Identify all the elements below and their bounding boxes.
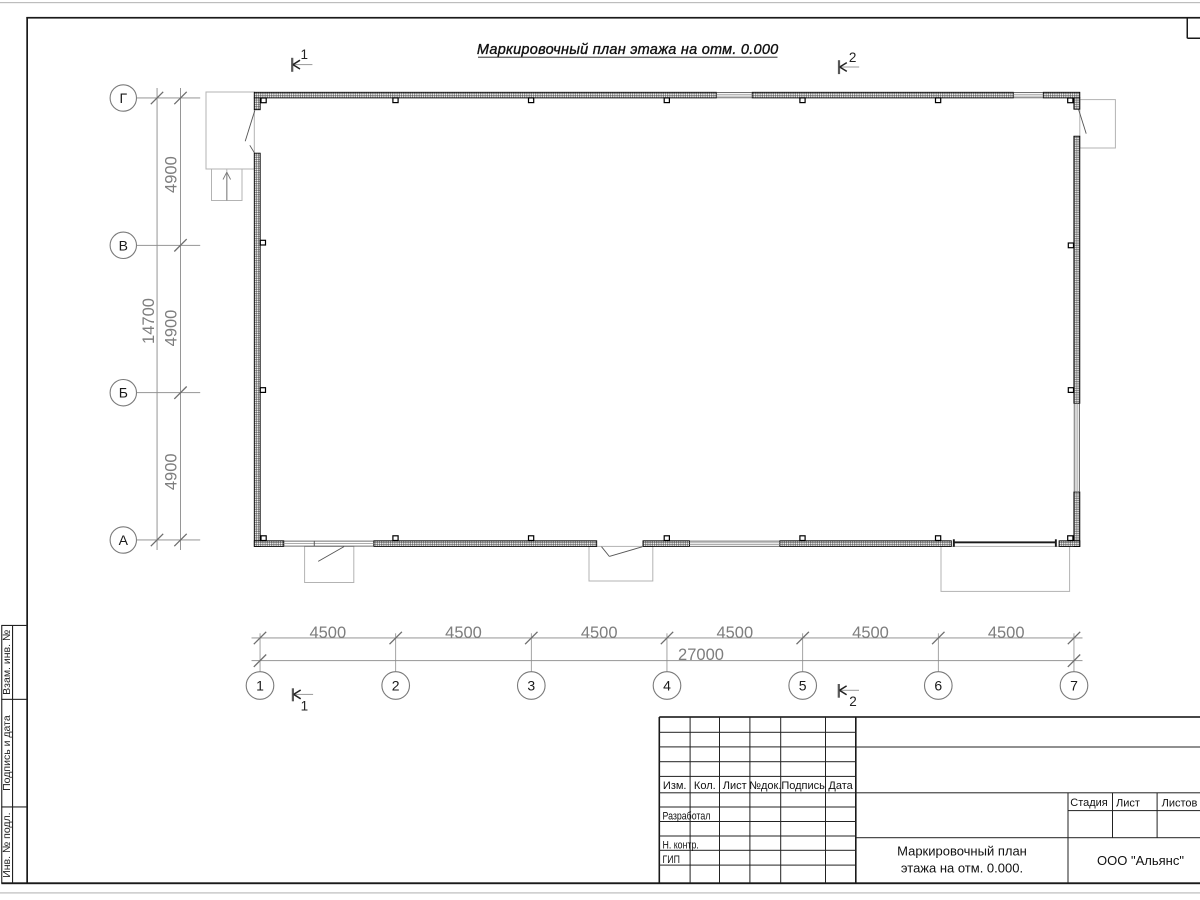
svg-text:4900: 4900: [163, 156, 181, 193]
svg-text:Подпись: Подпись: [781, 780, 825, 792]
svg-text:Маркировочный план: Маркировочный план: [897, 843, 1027, 858]
svg-text:4500: 4500: [581, 624, 618, 642]
svg-text:4500: 4500: [852, 624, 889, 642]
svg-text:Б: Б: [119, 385, 128, 401]
svg-text:ГИП: ГИП: [663, 854, 680, 866]
svg-text:Лист: Лист: [723, 780, 747, 792]
svg-text:14700: 14700: [140, 298, 158, 344]
svg-text:Изм.: Изм.: [663, 780, 687, 792]
svg-text:Маркировочный план этажа на от: Маркировочный план этажа на отм. 0.000: [477, 42, 779, 58]
svg-text:№док.: №док.: [749, 780, 781, 792]
svg-text:этажа на отм. 0.000.: этажа на отм. 0.000.: [901, 860, 1023, 875]
svg-text:4900: 4900: [163, 310, 181, 347]
svg-text:2: 2: [392, 678, 400, 694]
svg-text:2: 2: [849, 694, 857, 709]
svg-text:6: 6: [934, 678, 942, 694]
svg-text:Н. контр.: Н. контр.: [663, 839, 699, 851]
svg-text:27000: 27000: [678, 646, 724, 664]
svg-text:Разработал: Разработал: [663, 811, 711, 823]
svg-text:4500: 4500: [716, 624, 753, 642]
svg-text:4900: 4900: [163, 453, 181, 490]
svg-text:4500: 4500: [309, 624, 346, 642]
svg-text:3: 3: [527, 678, 535, 694]
svg-text:1: 1: [301, 698, 309, 713]
svg-text:2: 2: [849, 50, 857, 65]
svg-text:А: А: [119, 532, 129, 548]
svg-text:Г: Г: [120, 90, 128, 106]
svg-text:4500: 4500: [445, 624, 482, 642]
svg-text:4: 4: [663, 678, 671, 694]
svg-text:Стадия: Стадия: [1070, 797, 1108, 809]
svg-text:Подпись и дата: Подпись и дата: [1, 715, 13, 791]
svg-text:Дата: Дата: [828, 780, 853, 792]
svg-text:4500: 4500: [988, 624, 1025, 642]
svg-text:1: 1: [301, 47, 309, 62]
svg-text:В: В: [119, 237, 128, 253]
svg-text:Кол.: Кол.: [694, 780, 716, 792]
svg-text:1: 1: [256, 678, 264, 694]
svg-text:7: 7: [1070, 678, 1078, 694]
svg-text:Инв. № подл.: Инв. № подл.: [1, 812, 13, 877]
svg-text:Лист: Лист: [1116, 797, 1140, 809]
svg-text:Листов: Листов: [1162, 797, 1198, 809]
svg-text:5: 5: [799, 678, 807, 694]
svg-text:Взам. инв. №: Взам. инв. №: [1, 630, 13, 695]
svg-text:ООО "Альянс": ООО "Альянс": [1097, 853, 1184, 868]
